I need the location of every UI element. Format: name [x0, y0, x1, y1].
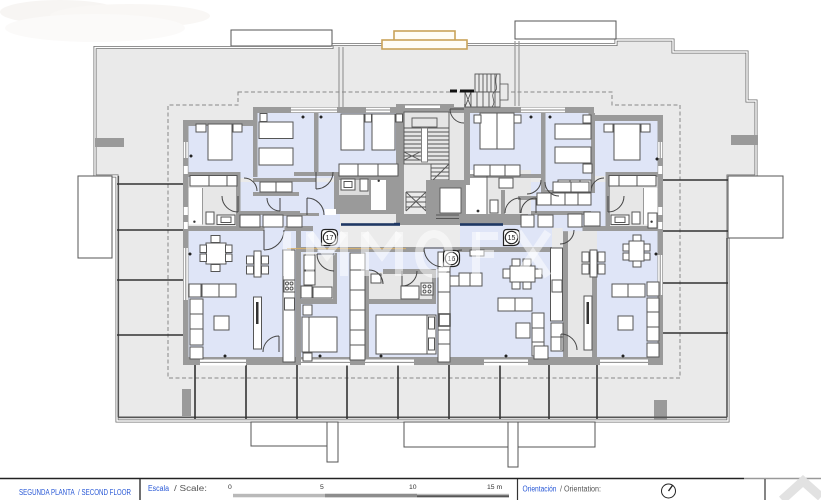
svg-text:Escala: Escala: [148, 484, 169, 493]
svg-text:10: 10: [409, 484, 417, 491]
svg-text:5: 5: [320, 484, 324, 491]
svg-text:15 m: 15 m: [487, 484, 502, 491]
svg-text:SEGUNDA PLANTA / SECOND FLOOR: SEGUNDA PLANTA / SECOND FLOOR: [19, 488, 131, 497]
svg-text:0: 0: [228, 484, 232, 491]
svg-text:Orientación: Orientación: [523, 485, 557, 494]
svg-text:/ Scale:: / Scale:: [174, 484, 207, 493]
svg-text:15: 15: [508, 235, 516, 242]
svg-text:17: 17: [326, 235, 334, 242]
svg-text:/ Orientation:: / Orientation:: [560, 485, 601, 494]
